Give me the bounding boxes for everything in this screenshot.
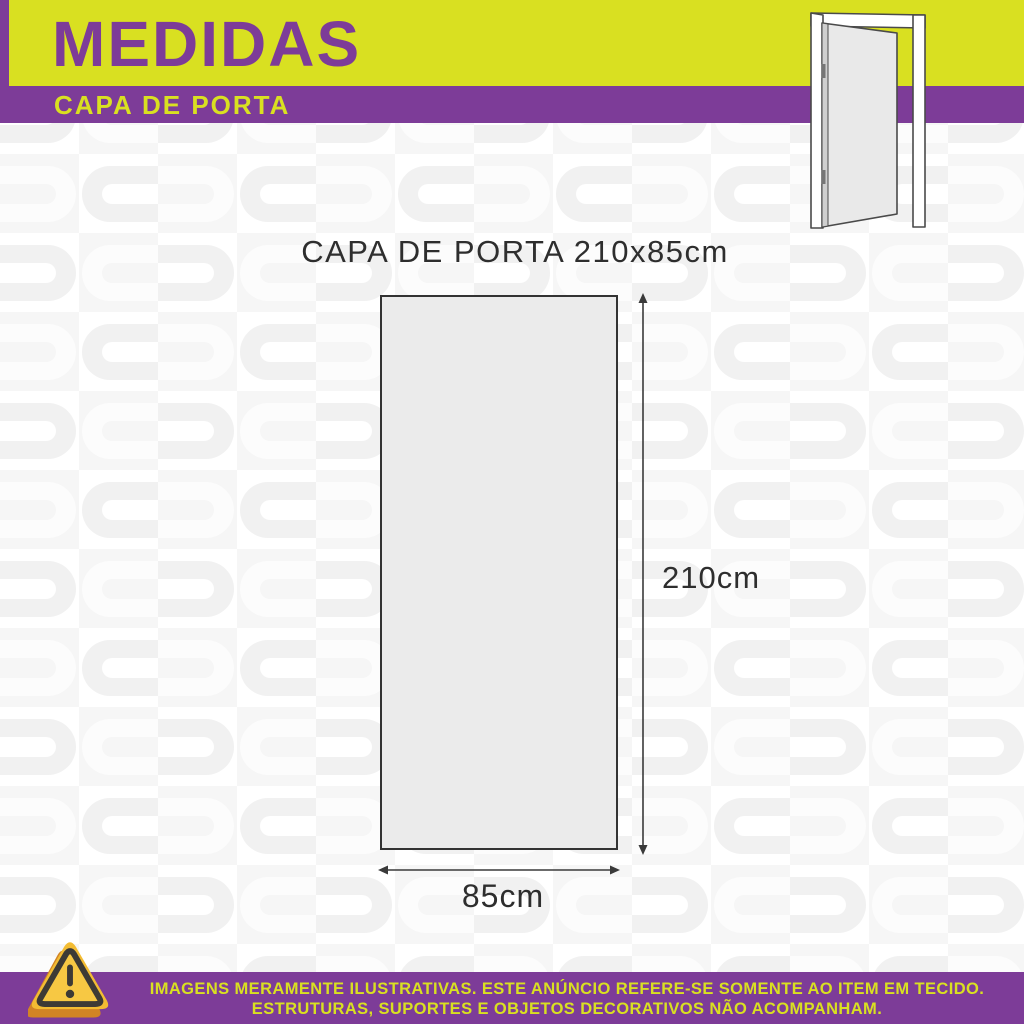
infographic-canvas: MEDIDAS CAPA DE PORTA CAPA DE PORTA 210x…: [0, 0, 1024, 1024]
width-dimension-arrow: [378, 862, 620, 878]
height-dimension-arrow: [635, 293, 651, 855]
page-subtitle: CAPA DE PORTA: [54, 90, 290, 121]
open-door-icon: [790, 2, 940, 242]
width-dimension-label: 85cm: [380, 878, 626, 915]
warning-triangle-icon: [28, 938, 112, 1018]
height-dimension-label: 210cm: [662, 560, 760, 596]
header-left-accent: [0, 0, 9, 86]
footer-disclaimer-line2: ESTRUTURAS, SUPORTES E OBJETOS DECORATIV…: [110, 999, 1024, 1019]
footer-disclaimer-band: IMAGENS MERAMENTE ILUSTRATIVAS. ESTE ANÚ…: [0, 972, 1024, 1024]
footer-disclaimer-text: IMAGENS MERAMENTE ILUSTRATIVAS. ESTE ANÚ…: [110, 979, 1024, 1019]
door-cover-panel: [380, 295, 618, 850]
page-title: MEDIDAS: [52, 10, 361, 78]
footer-disclaimer-line1: IMAGENS MERAMENTE ILUSTRATIVAS. ESTE ANÚ…: [110, 979, 1024, 999]
